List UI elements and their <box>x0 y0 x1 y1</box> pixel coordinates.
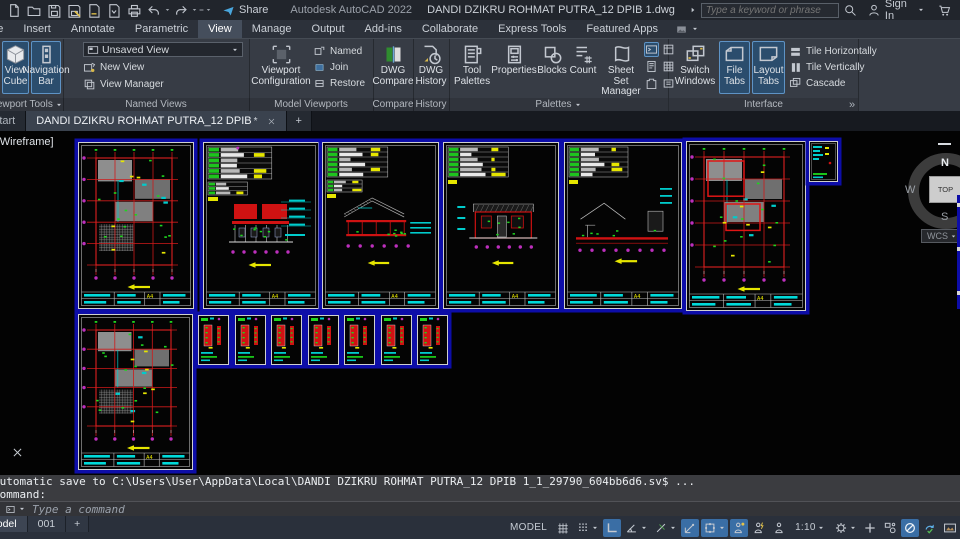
sign-in-button[interactable]: Sign In <box>867 0 925 22</box>
menu-tab-insert[interactable]: Insert <box>13 20 61 38</box>
properties-button[interactable]: Properties <box>494 41 534 94</box>
menu-tab-parametric[interactable]: Parametric <box>125 20 198 38</box>
new-file-button[interactable] <box>6 3 22 18</box>
restore-viewport-icon <box>313 77 326 90</box>
detail-sheet-6[interactable] <box>381 315 412 365</box>
viewport-configuration-icon <box>271 44 292 65</box>
detail-sheet-7[interactable] <box>417 315 448 365</box>
object-isolate-settings[interactable] <box>881 519 899 537</box>
panel-interface: Switch Windows File Tabs Layout Tabs Til… <box>669 39 859 111</box>
layout-tab-bar: Model 001 + <box>0 516 89 532</box>
sheet-2[interactable]: A4 <box>203 142 319 309</box>
svg-text:A4: A4 <box>757 296 764 302</box>
view-combo-value: Unsaved View <box>102 44 228 56</box>
ribbon: View Cube Navigation Bar Viewport Tools … <box>0 38 960 111</box>
annotation-scale-value[interactable]: 1:10 <box>790 519 830 537</box>
menu-tab-add-ins[interactable]: Add-ins <box>355 20 412 38</box>
isometric-drafting-toggle-icon <box>654 521 668 535</box>
drawing-canvas[interactable]: [-][Top][2D Wireframe] A4A4A4A4A4A4A4 N … <box>0 131 960 475</box>
ortho-mode-toggle-icon <box>605 521 619 535</box>
layout-tabs-icon <box>758 44 779 65</box>
ribbon-overflow[interactable]: » <box>849 99 855 111</box>
command-input-placeholder[interactable]: Type a command <box>32 503 125 516</box>
display-grid-toggle-icon <box>556 521 570 535</box>
annotation-scale-icon[interactable] <box>770 519 788 537</box>
sign-in-caret-icon <box>917 6 925 14</box>
viewcube-south[interactable]: S <box>941 211 948 223</box>
panel-named-views: Unsaved View New View View Manager Named… <box>63 39 250 111</box>
save-button[interactable] <box>46 3 62 18</box>
caret-down-icon <box>640 524 648 532</box>
search-icon[interactable] <box>843 3 857 17</box>
command-customize-icon[interactable] <box>5 504 16 515</box>
clean-screen-toggle-icon <box>943 521 957 535</box>
tile-vertically-icon <box>789 61 802 74</box>
viewcube-north[interactable]: N <box>941 157 949 169</box>
panel-label-model-viewports[interactable]: Model Viewports <box>249 98 373 111</box>
ribbon-tab-bar: HomeInsertAnnotateParametricViewManageOu… <box>0 20 960 38</box>
menu-tab-home[interactable]: Home <box>0 20 13 38</box>
tile-vertically-button[interactable]: Tile Vertically <box>789 60 865 75</box>
workspace-thumb-icon <box>674 24 689 35</box>
plus-button-icon <box>863 521 877 535</box>
print-button[interactable] <box>126 3 142 18</box>
tab-start[interactable]: Start <box>0 111 26 131</box>
undo-button[interactable] <box>146 3 162 18</box>
clean-screen-toggle[interactable] <box>941 519 959 537</box>
file-tabs-button[interactable]: File Tabs <box>719 41 750 94</box>
switch-windows-button[interactable]: Switch Windows <box>673 41 717 94</box>
caret-down-icon <box>669 524 677 532</box>
panel-palettes: Tool Palettes Properties Blocks Count Sh… <box>449 39 669 111</box>
count-icon <box>573 44 594 65</box>
svg-text:A4: A4 <box>512 294 519 300</box>
search-flyout-icon[interactable] <box>689 5 697 15</box>
graphics-performance-toggle-icon <box>923 521 937 535</box>
cascade-button[interactable]: Cascade <box>789 76 845 91</box>
detail-sheet-5[interactable] <box>344 315 375 365</box>
sheet-set-manager-button[interactable]: Sheet Set Manager <box>599 41 643 94</box>
ortho-mode-toggle[interactable] <box>603 519 621 537</box>
panel-label-viewport-tools[interactable]: Viewport Tools <box>0 98 63 111</box>
tool-palettes-icon <box>462 44 483 65</box>
command-history-line: Automatic save to C:\Users\User\AppData\… <box>0 476 960 489</box>
document-title: DANDI DZIKRU ROHMAT PUTRA_12 DPIB 1.dwg <box>427 4 675 16</box>
model-space-toggle[interactable]: MODEL <box>505 519 552 537</box>
graphics-performance-toggle[interactable] <box>921 519 939 537</box>
join-viewport-icon <box>313 61 326 74</box>
isolate-objects-toggle-icon <box>903 521 917 535</box>
save-as-button[interactable] <box>66 3 82 18</box>
polar-tracking-toggle[interactable] <box>623 519 650 537</box>
caret-down-icon <box>718 524 726 532</box>
display-grid-toggle[interactable] <box>554 519 572 537</box>
menu-tab-express-tools[interactable]: Express Tools <box>488 20 576 38</box>
markup-palette-icon[interactable] <box>645 60 658 73</box>
navbar-fragment <box>938 143 951 145</box>
caret-down-icon <box>817 524 825 532</box>
navigation-bar-icon <box>36 44 57 65</box>
snap-mode-toggle-icon <box>576 521 590 535</box>
sheet-6[interactable]: A4 <box>686 141 806 311</box>
annotation-autoscale-toggle[interactable] <box>750 519 768 537</box>
view-thumb-icon <box>87 44 99 56</box>
annotation-visibility-toggle[interactable] <box>730 519 748 537</box>
undo-dropdown-icon[interactable] <box>164 6 171 14</box>
snap-mode-toggle[interactable] <box>574 519 601 537</box>
panel-compare: DWG Compare Compare <box>373 39 414 111</box>
menu-tab-annotate[interactable]: Annotate <box>61 20 125 38</box>
object-snap-toggle-icon <box>703 521 717 535</box>
panel-label-palettes[interactable]: Palettes <box>449 98 668 111</box>
layout-tabs-button[interactable]: Layout Tabs <box>752 41 785 94</box>
object-snap-toggle[interactable] <box>701 519 728 537</box>
object-snap-tracking-toggle[interactable] <box>681 519 699 537</box>
tile-horizontally-icon <box>789 45 802 58</box>
sheet-set-manager-icon <box>611 44 632 65</box>
panel-model-viewports: Viewport Configuration Named Join Restor… <box>249 39 374 111</box>
command-history[interactable]: Automatic save to C:\Users\User\AppData\… <box>0 475 960 502</box>
new-layout-button[interactable]: + <box>66 516 89 532</box>
open-file-button[interactable] <box>26 3 42 18</box>
sheet-5[interactable]: A4 <box>564 142 682 309</box>
modified-indicator: * <box>254 116 258 127</box>
workspace-switching[interactable] <box>832 519 859 537</box>
count-button[interactable]: Count <box>568 41 598 94</box>
qat-customize-caret-icon[interactable] <box>205 6 212 14</box>
detail-sheet-3[interactable] <box>271 315 302 365</box>
file-tab-bar: Start DANDI DZIKRU ROHMAT PUTRA_12 DPIB … <box>0 111 960 131</box>
panel-label-compare[interactable]: Compare <box>373 98 413 111</box>
join-viewport-button[interactable]: Join <box>313 60 348 75</box>
panel-label-interface[interactable]: Interface <box>669 98 858 111</box>
panel-label-named-views[interactable]: Named Views <box>63 98 249 111</box>
layout-tab-model[interactable]: Model <box>0 516 28 532</box>
dwg-compare-icon <box>383 44 404 65</box>
file-tabs-icon <box>724 44 745 65</box>
menu-tab-collaborate[interactable]: Collaborate <box>412 20 488 38</box>
layout-tab-001[interactable]: 001 <box>28 516 67 532</box>
caret-down-icon <box>849 524 857 532</box>
search-input[interactable] <box>701 3 839 18</box>
dwg-compare-button[interactable]: DWG Compare <box>375 41 411 94</box>
svg-text:A4: A4 <box>272 294 279 300</box>
isometric-drafting-toggle[interactable] <box>652 519 679 537</box>
svg-text:A4: A4 <box>634 294 641 300</box>
panel-label-history[interactable]: History <box>413 98 449 111</box>
annotation-autoscale-toggle-icon <box>752 521 766 535</box>
publish-button[interactable] <box>106 3 122 18</box>
detail-sheet-1[interactable] <box>198 315 229 365</box>
detail-sheet-4[interactable] <box>308 315 339 365</box>
panel-caret-icon <box>55 101 63 109</box>
blocks-button[interactable]: Blocks <box>536 41 568 94</box>
redo-dropdown-icon[interactable] <box>191 6 198 14</box>
tool-palettes-button[interactable]: Tool Palettes <box>453 41 491 94</box>
command-history-line: Command: <box>0 489 960 502</box>
named-viewport-icon <box>313 45 326 58</box>
annotation-scale-icon-icon <box>772 521 786 535</box>
dwg-history-button[interactable]: DWG History <box>414 41 448 94</box>
app-title: Autodesk AutoCAD 2022 <box>290 4 412 16</box>
panel-viewport-tools: View Cube Navigation Bar Viewport Tools <box>0 39 64 111</box>
viewcube-west[interactable]: W <box>905 184 915 196</box>
status-bar: Model 001 + MODEL1:10 <box>0 516 960 539</box>
annotation-visibility-toggle-icon <box>732 521 746 535</box>
app-store-cart-icon[interactable] <box>937 3 951 17</box>
tab-document[interactable]: DANDI DZIKRU ROHMAT PUTRA_12 DPIB * <box>26 111 286 131</box>
command-line-palette-icon[interactable] <box>645 43 658 56</box>
workspace-switching-icon <box>834 521 848 535</box>
view-manager-button[interactable]: View Manager <box>83 77 164 92</box>
window-title: Autodesk AutoCAD 2022 DANDI DZIKRU ROHMA… <box>290 4 675 16</box>
share-icon <box>222 4 235 17</box>
menu-tab-featured-apps[interactable]: Featured Apps <box>576 20 668 38</box>
wcs-menu[interactable]: WCS <box>921 229 960 243</box>
title-bar: Share Autodesk AutoCAD 2022 DANDI DZIKRU… <box>0 0 960 20</box>
object-snap-tracking-toggle-icon <box>683 521 697 535</box>
menu-tab-manage[interactable]: Manage <box>242 20 302 38</box>
sign-in-label: Sign In <box>885 0 907 22</box>
status-toggle-strip: MODEL1:10 <box>505 518 960 537</box>
sheet-3[interactable]: A4 <box>322 142 439 309</box>
workspace-thumbnail-menu[interactable] <box>668 20 705 38</box>
new-view-icon <box>83 61 96 74</box>
wcs-caret-icon <box>950 233 957 240</box>
table-palette-icon[interactable] <box>645 77 658 90</box>
properties-icon <box>504 44 525 65</box>
restore-viewport-button[interactable]: Restore <box>313 76 365 91</box>
isolate-objects-toggle[interactable] <box>901 519 919 537</box>
share-label: Share <box>239 4 268 16</box>
view-manager-icon <box>83 78 96 91</box>
redo-button[interactable] <box>173 3 189 18</box>
new-tab-button[interactable]: + <box>287 111 312 131</box>
caret-down-icon <box>591 524 599 532</box>
blocks-icon <box>542 44 563 65</box>
object-isolate-settings-icon <box>883 521 897 535</box>
close-command-palette-icon[interactable] <box>11 446 24 459</box>
viewport-configuration-button[interactable]: Viewport Configuration <box>253 41 309 94</box>
menu-tab-view[interactable]: View <box>198 20 242 38</box>
viewport-controls-label[interactable]: [-][Top][2D Wireframe] <box>0 136 54 148</box>
menu-tab-output[interactable]: Output <box>302 20 355 38</box>
dwg-history-icon <box>421 44 442 65</box>
view-cube-icon <box>5 44 26 65</box>
command-line-window: Automatic save to C:\Users\User\AppData\… <box>0 475 960 516</box>
sheet-7[interactable]: A4 <box>78 314 193 470</box>
tile-horizontally-button[interactable]: Tile Horizontally <box>789 44 877 59</box>
command-input-row[interactable]: Type a command <box>0 501 960 516</box>
svg-text:A4: A4 <box>391 294 398 300</box>
cascade-icon <box>789 77 802 90</box>
panel-history: DWG History History <box>413 39 450 111</box>
close-tab-icon[interactable] <box>267 117 276 126</box>
plus-button[interactable] <box>861 519 879 537</box>
polar-tracking-toggle-icon <box>625 521 639 535</box>
command-recent-caret-icon[interactable] <box>18 505 26 513</box>
detail-sheet-2[interactable] <box>235 315 266 365</box>
viewcube-top-face[interactable]: TOP <box>929 176 960 203</box>
share-button[interactable]: Share <box>222 4 268 17</box>
user-icon <box>867 3 881 17</box>
new-view-button[interactable]: New View <box>83 60 144 75</box>
view-combo-caret-icon <box>231 46 239 54</box>
navigation-bar-button[interactable]: Navigation Bar <box>31 41 61 94</box>
plot-button[interactable] <box>86 3 102 18</box>
switch-windows-icon <box>685 44 706 65</box>
sheet-1[interactable]: A4 <box>78 142 194 309</box>
svg-text:A4: A4 <box>147 294 154 300</box>
qat-customize-icon[interactable] <box>198 6 205 14</box>
sheet-thumbnail[interactable] <box>809 141 838 182</box>
svg-text:A4: A4 <box>146 455 153 461</box>
sheet-4[interactable]: A4 <box>443 142 559 309</box>
named-viewport-button[interactable]: Named <box>313 44 362 59</box>
autocad-window: Share Autodesk AutoCAD 2022 DANDI DZIKRU… <box>0 0 960 539</box>
panel-caret-icon <box>574 101 582 109</box>
view-combo[interactable]: Unsaved View <box>83 42 243 57</box>
caret-down-icon <box>691 25 699 33</box>
